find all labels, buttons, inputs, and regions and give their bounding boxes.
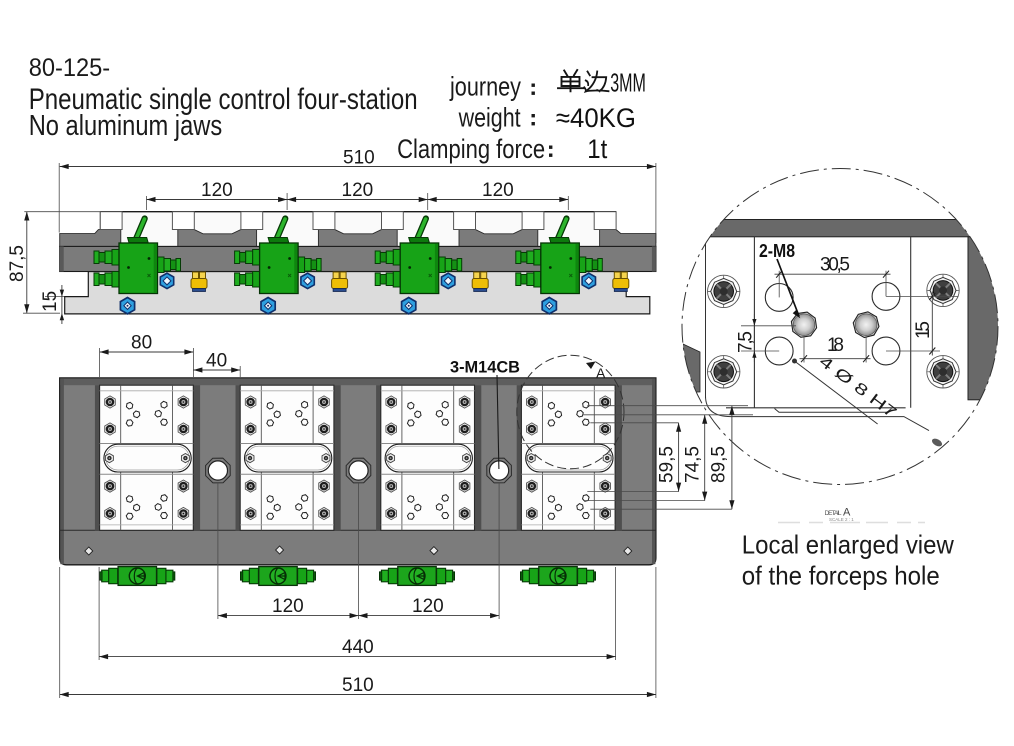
svg-text:Clamping force: Clamping force xyxy=(397,134,545,164)
svg-text:weight: weight xyxy=(458,102,521,132)
svg-text:18: 18 xyxy=(827,335,844,356)
svg-text:40: 40 xyxy=(206,351,227,372)
svg-text:30,5: 30,5 xyxy=(820,255,850,276)
svg-text:DETAIL: DETAIL xyxy=(825,510,842,517)
svg-text:120: 120 xyxy=(412,596,444,617)
svg-text:59,5: 59,5 xyxy=(657,446,678,483)
svg-text:120: 120 xyxy=(201,180,233,201)
svg-text:3-M14CB: 3-M14CB xyxy=(450,358,520,377)
svg-text:No aluminum jaws: No aluminum jaws xyxy=(29,110,223,142)
svg-text:440: 440 xyxy=(342,637,374,658)
svg-text:Local enlarged view: Local enlarged view xyxy=(742,530,954,560)
svg-text:80-125-: 80-125- xyxy=(29,54,111,82)
svg-text:7,5: 7,5 xyxy=(736,331,757,353)
svg-text:1t: 1t xyxy=(587,134,607,164)
svg-text:15: 15 xyxy=(913,321,934,339)
svg-text:≈40KG: ≈40KG xyxy=(556,103,636,133)
svg-text:89,5: 89,5 xyxy=(709,446,730,483)
svg-text:74,5: 74,5 xyxy=(683,446,704,483)
svg-text:15: 15 xyxy=(40,291,61,312)
svg-text:2-M8: 2-M8 xyxy=(759,241,795,261)
svg-text:120: 120 xyxy=(272,596,304,617)
svg-text:journey: journey xyxy=(449,72,521,102)
svg-text:120: 120 xyxy=(342,180,374,201)
svg-text:87,5: 87,5 xyxy=(7,245,28,282)
svg-text:510: 510 xyxy=(342,675,374,696)
svg-text:80: 80 xyxy=(131,333,152,354)
svg-text:120: 120 xyxy=(482,180,514,201)
svg-text:510: 510 xyxy=(343,148,375,169)
svg-text:of the forceps hole: of the forceps hole xyxy=(742,560,940,590)
svg-text:A: A xyxy=(596,365,606,381)
svg-text:3MM: 3MM xyxy=(610,68,646,98)
svg-text:SCALE 2 : 1: SCALE 2 : 1 xyxy=(829,517,854,522)
